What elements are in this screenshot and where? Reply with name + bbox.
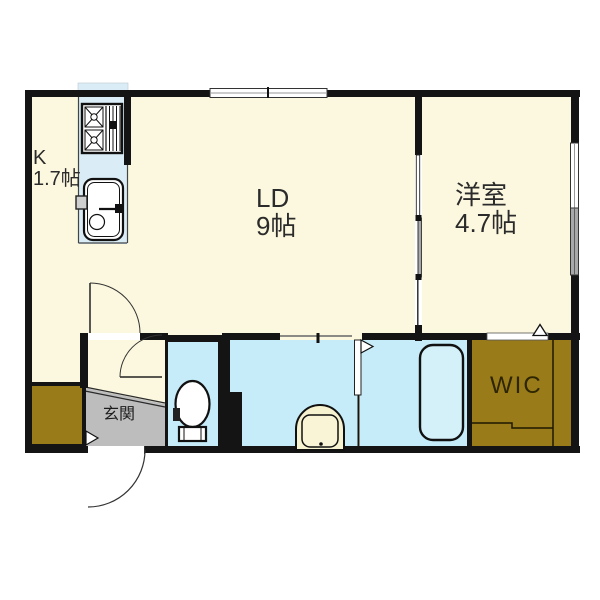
floor-plan-drawing <box>0 0 600 600</box>
wall-kitchen-right <box>124 90 131 165</box>
bathtub-icon <box>420 345 463 440</box>
wall-entrance-left <box>80 333 88 388</box>
wall-toilet-top <box>165 335 222 342</box>
shoe-cabinet <box>30 384 84 446</box>
wall-toilet-left <box>165 340 168 446</box>
wall-washroom-top-left <box>222 333 280 340</box>
western-room-size: 4.7帖 <box>455 209 517 237</box>
wall-toilet-right <box>218 340 230 446</box>
living-dining-label: LD 9帖 <box>256 184 296 240</box>
toilet-icon <box>173 381 210 441</box>
kitchen-sink-icon <box>76 179 123 240</box>
kitchen-size: 1.7帖 <box>33 169 81 190</box>
wall-ld-western-top <box>415 90 422 155</box>
kitchen-window <box>78 83 128 91</box>
wic-label: WIC <box>490 372 543 400</box>
stove-icon <box>82 104 122 153</box>
entrance-label: 玄関 <box>103 406 135 423</box>
entrance-name: 玄関 <box>103 406 135 423</box>
sliding-door-ld-western <box>415 155 422 325</box>
wall-wic-top-left <box>422 333 487 340</box>
floor-plan-image: K 1.7帖 LD 9帖 洋室 4.7帖 玄関 WIC <box>0 0 600 600</box>
wall-left <box>25 90 32 453</box>
wall-toilet-notch <box>230 392 242 446</box>
wall-washroom-top-right <box>362 333 415 340</box>
window-western-right <box>571 143 579 275</box>
wall-ld-western-bottom <box>415 325 422 341</box>
kitchen-label: K 1.7帖 <box>33 148 81 190</box>
door-swing-arc <box>88 450 145 507</box>
wall-bath-wic <box>467 340 472 446</box>
living-dining-size: 9帖 <box>256 212 296 240</box>
door-leaf <box>355 340 362 395</box>
western-room-name: 洋室 <box>455 181 517 209</box>
living-dining-name: LD <box>256 184 296 212</box>
wic-name: WIC <box>490 372 543 400</box>
western-room-label: 洋室 4.7帖 <box>455 181 517 237</box>
window-top <box>210 87 327 98</box>
kitchen-name: K <box>33 148 81 169</box>
washbasin-icon <box>296 405 344 450</box>
